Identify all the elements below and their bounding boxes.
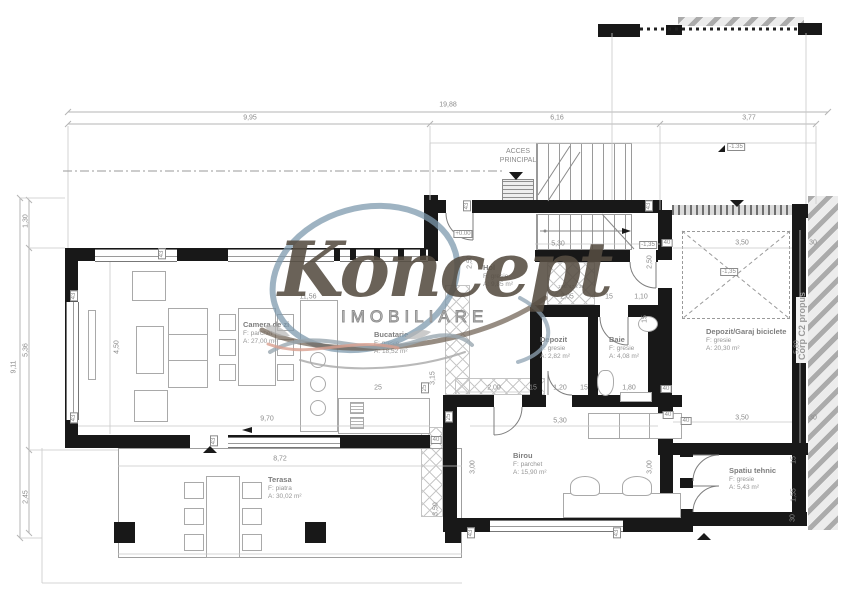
watermark-script-text: Koncept <box>278 232 610 308</box>
watermark-caps-text: IMOBILIARE <box>341 308 488 325</box>
floor-plan-canvas: Koncept IMOBILIARE ACCES PRINCIPAL 18 tr… <box>0 0 853 606</box>
